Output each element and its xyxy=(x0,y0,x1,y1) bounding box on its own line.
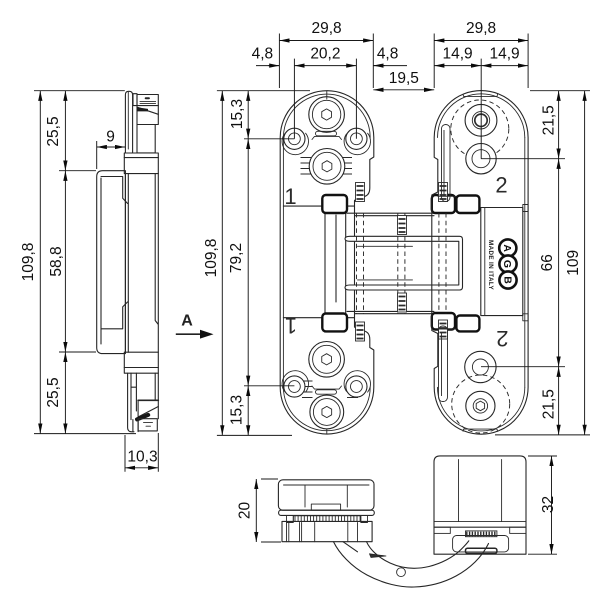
svg-text:21,5: 21,5 xyxy=(541,389,558,419)
svg-text:58,8: 58,8 xyxy=(48,246,65,276)
svg-text:109: 109 xyxy=(565,250,582,276)
svg-text:10,3: 10,3 xyxy=(127,449,157,466)
svg-text:25,5: 25,5 xyxy=(45,377,62,407)
svg-text:B: B xyxy=(501,276,513,284)
svg-text:32: 32 xyxy=(540,496,557,513)
svg-text:14,9: 14,9 xyxy=(443,46,473,63)
svg-text:29,8: 29,8 xyxy=(312,20,342,37)
svg-text:109,8: 109,8 xyxy=(203,239,220,278)
svg-text:21,5: 21,5 xyxy=(541,105,558,135)
svg-text:9: 9 xyxy=(106,129,115,146)
svg-text:2: 2 xyxy=(496,326,508,351)
svg-text:66: 66 xyxy=(539,254,556,271)
svg-text:79,2: 79,2 xyxy=(228,243,245,273)
svg-text:MADE IN ITALY: MADE IN ITALY xyxy=(487,240,494,290)
svg-text:1: 1 xyxy=(285,313,297,338)
svg-text:G: G xyxy=(501,260,513,268)
svg-text:15,3: 15,3 xyxy=(229,99,246,129)
svg-text:A: A xyxy=(501,244,513,252)
svg-text:109,8: 109,8 xyxy=(20,243,37,282)
svg-text:29,8: 29,8 xyxy=(466,20,496,37)
svg-text:15,3: 15,3 xyxy=(229,395,246,425)
svg-text:A: A xyxy=(181,313,193,330)
svg-text:14,9: 14,9 xyxy=(490,46,520,63)
svg-text:25,5: 25,5 xyxy=(45,116,62,146)
svg-text:20,2: 20,2 xyxy=(310,46,340,63)
svg-text:4,8: 4,8 xyxy=(252,46,274,63)
svg-text:19,5: 19,5 xyxy=(389,70,419,87)
svg-text:4,8: 4,8 xyxy=(377,46,399,63)
svg-text:1: 1 xyxy=(284,184,296,209)
svg-text:2: 2 xyxy=(495,173,507,198)
svg-text:20: 20 xyxy=(237,502,254,520)
